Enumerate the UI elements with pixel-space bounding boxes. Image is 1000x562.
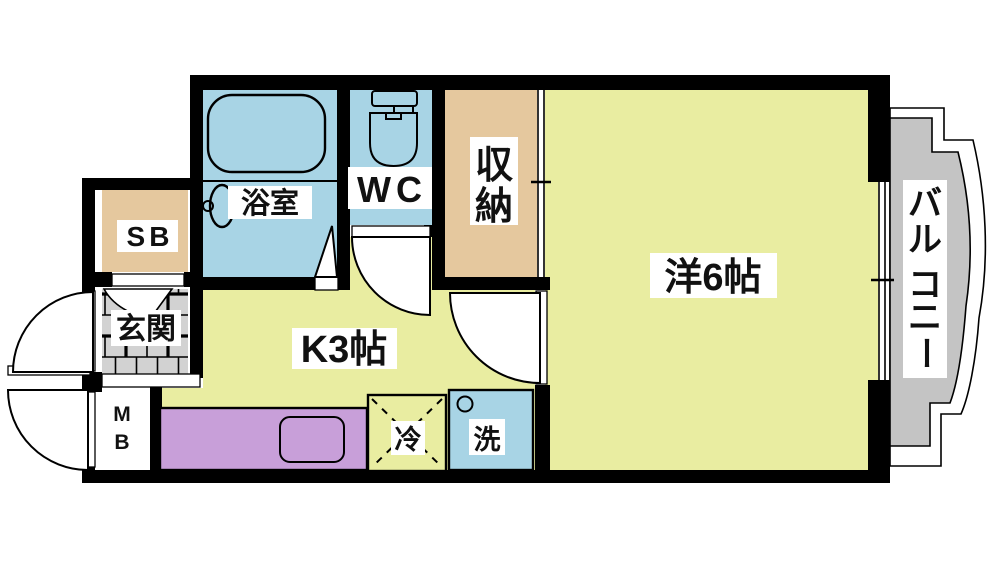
washer-label: 洗 bbox=[474, 425, 501, 455]
bath-door-opening bbox=[315, 277, 338, 290]
floor-plan: 浴室 WC 収 納 洋6帖 バ ル コ ニ ー SB 玄関 M B K3帖 冷 … bbox=[0, 0, 1000, 562]
balcony-label-char4: ニ bbox=[908, 299, 942, 337]
wc-door-opening bbox=[352, 226, 430, 237]
meter-box-label-char1: M bbox=[113, 403, 131, 426]
wall bbox=[432, 277, 550, 290]
balcony-label-char1: バ bbox=[908, 185, 942, 223]
wc-label: WC bbox=[357, 169, 427, 210]
wall bbox=[190, 75, 890, 90]
western-room-label: 洋6帖 bbox=[664, 257, 761, 299]
wall bbox=[203, 277, 315, 290]
closet-label-char1: 収 bbox=[475, 145, 513, 187]
wall bbox=[868, 380, 890, 483]
wall bbox=[432, 88, 445, 290]
bathroom-label: 浴室 bbox=[241, 186, 299, 220]
closet-label-char2: 納 bbox=[475, 186, 513, 228]
wall bbox=[190, 75, 203, 378]
fridge-label: 冷 bbox=[395, 425, 422, 455]
wall bbox=[82, 178, 203, 190]
shoe-box-label: SB bbox=[127, 221, 174, 252]
kitchen-label: K3帖 bbox=[301, 329, 388, 371]
entrance-label: 玄関 bbox=[116, 312, 176, 346]
meter-box-label-char2: B bbox=[114, 431, 129, 454]
balcony-label-char2: ル bbox=[908, 221, 942, 259]
wall bbox=[95, 272, 112, 287]
wall bbox=[82, 470, 890, 483]
shoe-box-opening bbox=[112, 274, 184, 286]
wall bbox=[82, 190, 95, 292]
balcony-label-char5: ー bbox=[906, 336, 944, 370]
floor-plan-canvas: 浴室 WC 収 納 洋6帖 バ ル コ ニ ー SB 玄関 M B K3帖 冷 … bbox=[0, 0, 1000, 562]
wall bbox=[868, 75, 890, 182]
bathroom-floor bbox=[203, 88, 337, 277]
entrance-step bbox=[102, 374, 200, 387]
wall bbox=[535, 385, 550, 470]
wall bbox=[184, 272, 203, 287]
